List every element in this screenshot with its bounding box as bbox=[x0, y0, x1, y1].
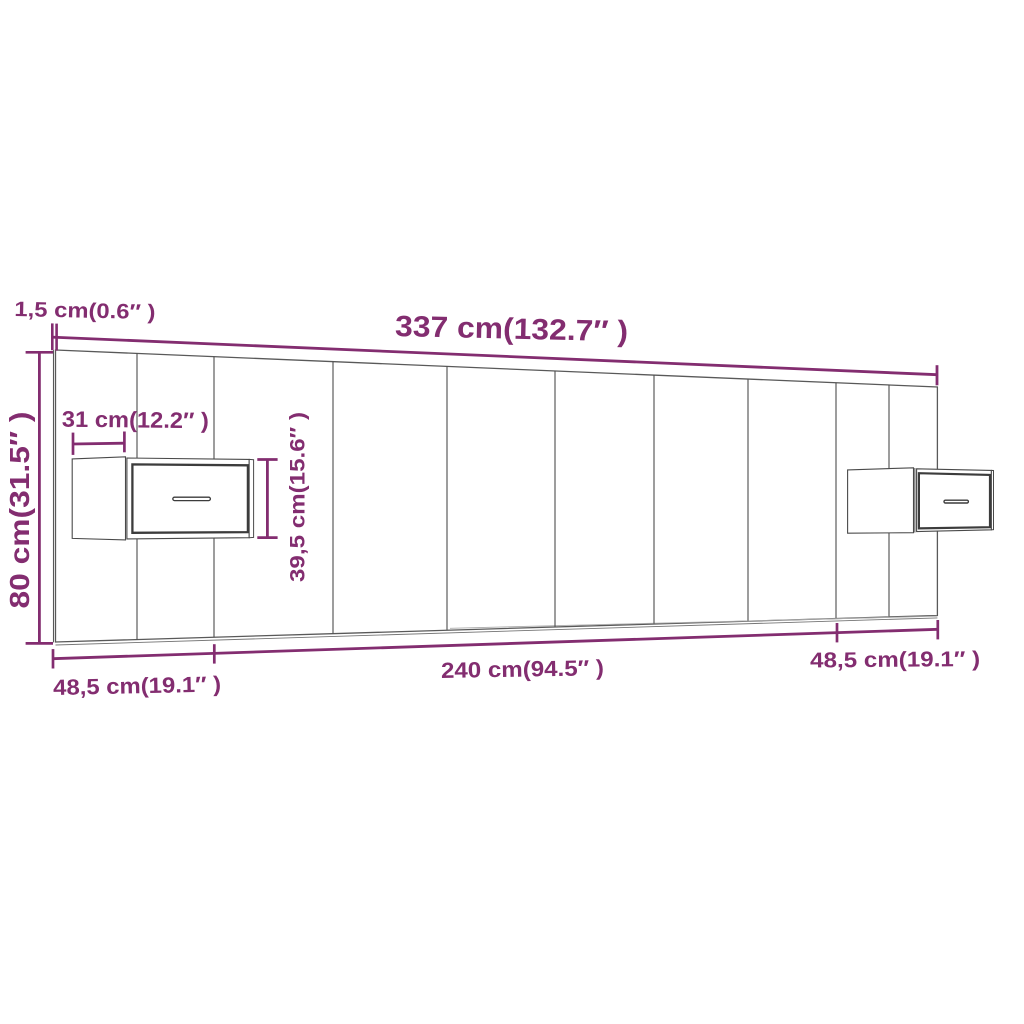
svg-text:31 cm(12.2″ ): 31 cm(12.2″ ) bbox=[62, 407, 209, 434]
svg-text:39,5 cm(15.6″ ): 39,5 cm(15.6″ ) bbox=[286, 412, 309, 582]
svg-text:48,5 cm(19.1″ ): 48,5 cm(19.1″ ) bbox=[810, 647, 980, 672]
svg-text:80 cm(31.5″ ): 80 cm(31.5″ ) bbox=[4, 412, 35, 609]
svg-text:48,5 cm(19.1″ ): 48,5 cm(19.1″ ) bbox=[53, 671, 221, 700]
svg-text:337 cm(132.7″ ): 337 cm(132.7″ ) bbox=[395, 310, 629, 348]
svg-text:1,5 cm(0.6″ ): 1,5 cm(0.6″ ) bbox=[14, 298, 155, 324]
svg-text:240 cm(94.5″ ): 240 cm(94.5″ ) bbox=[441, 655, 604, 683]
